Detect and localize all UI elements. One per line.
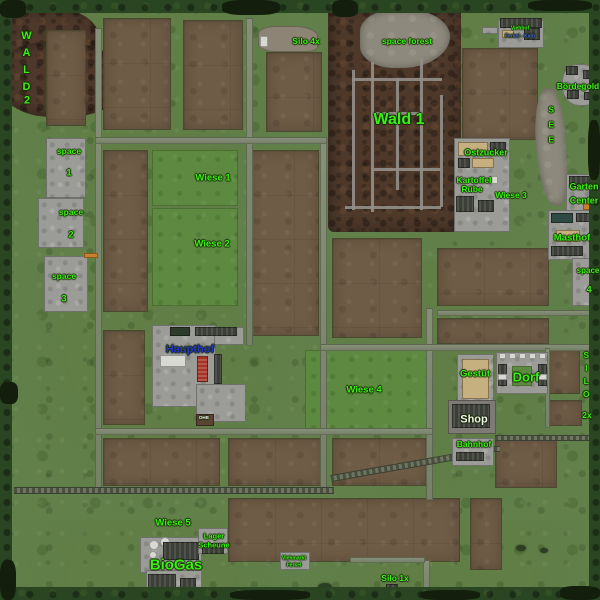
haupthof-machine — [197, 356, 208, 382]
field-17 — [103, 330, 145, 425]
field-6 — [247, 150, 319, 336]
label-space-3-number: 3 — [61, 294, 66, 304]
shed-top-right — [482, 27, 498, 34]
haupthof-trailer — [214, 354, 222, 384]
dorf-house-4 — [529, 353, 536, 359]
label-wald-2-number: 2 — [24, 96, 30, 107]
field-3 — [183, 20, 243, 130]
road-h-mid — [320, 344, 600, 351]
road-h-silo — [350, 557, 425, 563]
label-scheune: Scheune — [198, 541, 229, 549]
label-see-vertical: SEE — [547, 105, 556, 150]
field-11 — [548, 348, 580, 394]
label-ferkel-kalb: Ferkel - Kalb — [505, 35, 535, 40]
biogas-tank-1 — [149, 540, 159, 550]
field-12 — [548, 400, 582, 426]
forest-path-v5 — [440, 95, 443, 207]
field-15 — [228, 438, 324, 486]
label-space-4-number: 4 — [586, 285, 591, 295]
field-9 — [437, 318, 549, 344]
road-v-east — [426, 308, 433, 500]
road-v-mid2 — [320, 140, 327, 492]
forest-path-h4 — [345, 206, 441, 209]
label-lager: Lager — [204, 532, 224, 540]
field-19 — [470, 498, 502, 570]
field-18 — [228, 498, 460, 562]
label-silo-1x: Silo 1x — [381, 574, 408, 583]
masthof-building-1 — [551, 213, 573, 223]
meadow-wiese2 — [152, 208, 238, 306]
boerdegold-building-1 — [566, 66, 578, 75]
label-space-2-number: 2 — [68, 230, 73, 240]
label-space-2: space — [59, 208, 83, 217]
silo4x-structure — [260, 36, 268, 47]
label-silo-vertical: SILO — [582, 350, 591, 402]
label-space-4: space — [577, 267, 600, 275]
label-wiese-4: Wiese 4 — [346, 385, 381, 395]
field-top-right — [462, 48, 538, 140]
map-canvas: WALD2space1space2space3Silo 4xspace fore… — [0, 0, 600, 600]
label-masthof: Masthof — [554, 233, 590, 243]
werkstatt-mark — [84, 253, 98, 258]
label-wald-2-vertical: WALD — [21, 30, 32, 98]
field-5 — [103, 150, 148, 312]
label-biogas: BioGas — [150, 558, 203, 573]
field-7 — [332, 238, 422, 338]
label-gestuet: Gestüt — [460, 369, 490, 379]
ostzucker-building-4 — [478, 200, 494, 212]
field-13 — [495, 438, 557, 488]
label-ruebe: Rübe — [461, 185, 482, 194]
border-patch-2 — [332, 0, 358, 17]
border-patch-3 — [528, 0, 592, 11]
frame-left — [0, 0, 12, 600]
forest-path-v2 — [371, 62, 374, 212]
field-1 — [46, 30, 86, 126]
label-space-1: space — [57, 147, 81, 156]
label-dhb: DHB — [199, 416, 209, 421]
ostzucker-tan-2 — [472, 158, 494, 168]
label-viehmarkt: Viehmarkt — [282, 557, 306, 562]
dorf-house-1 — [499, 353, 506, 359]
field-2 — [103, 18, 171, 130]
field-8 — [437, 248, 549, 306]
haupthof-roof-1 — [170, 327, 190, 336]
road-v-west — [95, 28, 102, 490]
forest-path-v1 — [352, 70, 355, 210]
road-h-south — [95, 428, 433, 435]
dorf-house-5 — [539, 353, 546, 359]
label-wiese-5: Wiese 5 — [155, 518, 190, 528]
boerdegold-building-3 — [567, 90, 579, 99]
label-silo-4x: Silo 4x — [292, 37, 319, 46]
label-wiese-1: Wiese 1 — [195, 173, 230, 183]
label-boerdegold: Bördegold — [557, 82, 600, 91]
railway-east — [495, 435, 600, 441]
forest-path-h1 — [352, 78, 442, 81]
dorf-house-2 — [509, 353, 516, 359]
label-ostzucker: Ostzucker — [464, 149, 508, 158]
label-space-forest: space forest — [382, 37, 432, 46]
label-bahnhof: Bahnhof — [457, 440, 491, 449]
tree-2 — [540, 548, 548, 553]
dorf-house-left — [498, 374, 507, 380]
label-wald-1: Wald 1 — [374, 112, 425, 128]
space2-pad — [38, 198, 84, 248]
border-patch-7 — [560, 586, 600, 600]
label-dorf: Dorf — [513, 371, 540, 384]
border-patch-10 — [588, 120, 600, 180]
masthof-building-3 — [551, 246, 583, 256]
haupthof-roof-2 — [195, 327, 237, 336]
border-patch-6 — [0, 560, 16, 600]
haupthof-house — [160, 355, 186, 367]
label-viehmarkt-ferkel: Ferkel — [287, 564, 302, 569]
label-garten: Garten — [569, 183, 598, 192]
border-patch-8 — [230, 590, 310, 600]
road-v-mid1 — [246, 18, 253, 346]
road-h-north — [95, 137, 327, 144]
frame-top — [0, 0, 600, 13]
label-center: Center — [570, 197, 599, 206]
label-space-1-number: 1 — [66, 168, 71, 178]
border-patch-4 — [0, 0, 26, 18]
field-16 — [103, 438, 220, 486]
road-h-right — [437, 310, 600, 316]
dorf-house-3 — [519, 353, 526, 359]
label-haupthof: Haupthof — [166, 345, 214, 356]
railway-west — [14, 487, 334, 494]
border-patch-1 — [222, 0, 280, 15]
border-patch-9 — [420, 590, 480, 600]
ostzucker-building-3 — [456, 196, 474, 212]
label-wiese-3: Wiese 3 — [495, 191, 527, 200]
bahnhof-building — [456, 452, 484, 461]
border-patch-5 — [0, 382, 18, 404]
label-viehhof: Viehhof — [511, 27, 529, 32]
label-space-3: space — [52, 272, 76, 281]
forest-path-v3 — [396, 78, 399, 190]
forest-path-h3 — [371, 168, 441, 171]
label-shop: Shop — [460, 415, 488, 426]
label-silo-2x: 2x — [582, 411, 591, 420]
ostzucker-building-2 — [458, 158, 470, 168]
label-wiese-2: Wiese 2 — [194, 239, 229, 249]
tree-1 — [516, 545, 526, 551]
field-4 — [266, 52, 322, 132]
